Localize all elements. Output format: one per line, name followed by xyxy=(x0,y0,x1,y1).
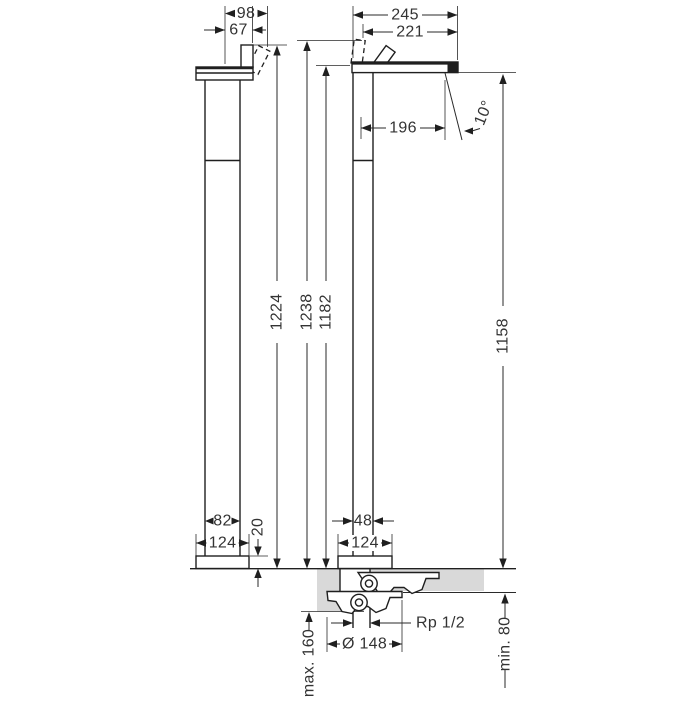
dimension-angle-10: 10° xyxy=(464,98,497,134)
dimension-20: 20 xyxy=(250,518,269,587)
side-base-plate xyxy=(196,556,249,569)
dim-124-right-label: 124 xyxy=(351,535,379,552)
front-column xyxy=(353,73,373,556)
dim-min-80-label: min. 80 xyxy=(497,617,514,672)
dimension-rp-thread: Rp 1/2 xyxy=(331,615,465,632)
dim-1238-label: 1238 xyxy=(299,294,316,331)
dim-245-label: 245 xyxy=(391,7,419,24)
dim-82-label: 82 xyxy=(213,513,231,530)
spray-angle-line xyxy=(445,73,462,140)
dim-diameter-label: Ø 148 xyxy=(342,636,387,653)
dimension-1158: 1158 xyxy=(458,73,516,569)
front-base-plate xyxy=(338,556,392,569)
technical-drawing-page: 98 67 245 221 196 10° xyxy=(0,0,700,700)
dim-48-label: 48 xyxy=(354,513,372,530)
dim-1224-label: 1224 xyxy=(269,294,286,331)
dim-67-label: 67 xyxy=(229,22,247,39)
dim-max-160-label: max. 160 xyxy=(301,629,318,697)
spray-angle-label: 10° xyxy=(471,98,496,128)
dimension-drawing: 98 67 245 221 196 10° xyxy=(0,0,700,700)
front-spout-outlet xyxy=(448,62,459,73)
dimension-221: 221 xyxy=(363,24,458,41)
dimension-82: 82 xyxy=(205,513,240,530)
dim-20-label: 20 xyxy=(250,518,267,536)
dim-221-label: 221 xyxy=(396,24,424,41)
dimension-max-160: max. 160 xyxy=(301,612,318,697)
dimension-124-left: 124 xyxy=(196,534,249,556)
dimension-48: 48 xyxy=(332,513,394,530)
side-handle xyxy=(241,45,253,68)
dimension-1182: 1182 xyxy=(316,66,350,569)
dimension-min-80: min. 80 xyxy=(497,594,514,689)
thread-label: Rp 1/2 xyxy=(416,615,465,632)
dimension-1224: 1224 xyxy=(243,45,287,569)
dim-124-left-label: 124 xyxy=(209,535,237,552)
dim-1158-label: 1158 xyxy=(495,318,512,354)
side-spout-cap xyxy=(196,67,253,80)
front-spout-deck xyxy=(352,62,458,73)
side-view xyxy=(196,45,270,569)
dimension-124-right: 124 xyxy=(338,534,392,556)
dim-1182-label: 1182 xyxy=(318,294,335,330)
installation-section xyxy=(190,569,516,628)
dim-196-label: 196 xyxy=(389,120,417,137)
side-column xyxy=(205,80,240,556)
